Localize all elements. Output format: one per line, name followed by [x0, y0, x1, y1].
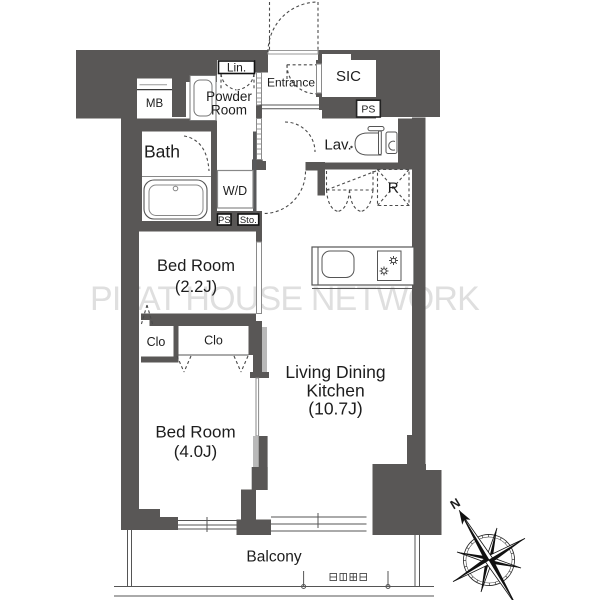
svg-text:(10.7J): (10.7J) [308, 399, 362, 419]
svg-text:PS: PS [218, 215, 231, 226]
svg-text:Balcony: Balcony [246, 549, 301, 566]
svg-text:SIC: SIC [336, 68, 361, 85]
svg-text:Lav.: Lav. [324, 137, 351, 154]
svg-text:PS: PS [361, 104, 375, 116]
svg-text:Clo: Clo [204, 334, 223, 348]
svg-text:MB: MB [146, 98, 164, 110]
svg-text:Sto.: Sto. [240, 215, 257, 226]
svg-text:Living Dining: Living Dining [285, 362, 385, 382]
svg-text:Kitchen: Kitchen [306, 381, 364, 401]
svg-text:Bed Room: Bed Room [157, 257, 235, 275]
svg-text:Entrance: Entrance [267, 76, 315, 90]
svg-text:Bed Room: Bed Room [155, 423, 235, 442]
svg-text:Clo: Clo [147, 335, 166, 349]
svg-text:Lin.: Lin. [227, 61, 246, 75]
svg-text:R: R [388, 180, 399, 197]
svg-text:(2.2J): (2.2J) [175, 278, 217, 296]
svg-text:W/D: W/D [223, 184, 247, 198]
svg-text:Room: Room [211, 103, 247, 118]
svg-text:Bath: Bath [144, 142, 180, 162]
svg-text:(4.0J): (4.0J) [174, 442, 217, 461]
